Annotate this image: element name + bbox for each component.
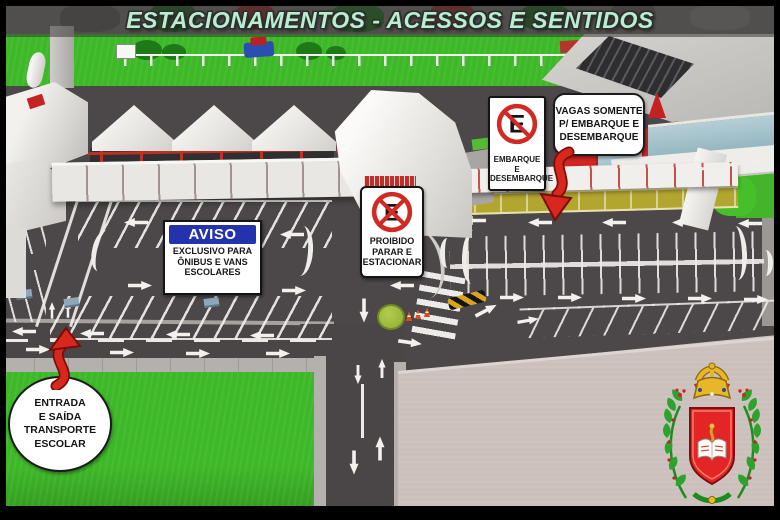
traffic-cone [405,311,413,321]
frame-top [0,0,780,6]
tent-canopy [172,105,256,151]
car-roof [250,36,267,45]
callout-entrada-line: ESCOLAR [34,438,85,452]
lane-arrow [622,294,646,303]
lane-arrow [282,286,306,295]
small-sign-hut [116,44,136,59]
sign-aviso-line: ESCOLARES [165,267,260,278]
tent-canopy [252,105,336,151]
callout-entrada: ENTRADA E SAÍDA TRANSPORTE ESCOLAR [8,376,112,472]
sign-no-stopping: E PROIBIDO PARAR E ESTACIONAR [360,186,424,278]
tent-canopy [92,105,176,151]
callout-entrada-line: ENTRADA [34,397,85,411]
sign-aviso-header: AVISO [169,225,256,244]
sidewalk-vertical-left [314,356,326,508]
sign-aviso: AVISO EXCLUSIVO PARA ÔNIBUS E VANS ESCOL… [163,220,262,295]
no-stopping-icon: E [370,190,414,234]
vertical-road-centerline [361,384,364,438]
callout-vagas-line: VAGAS SOMENTE [555,105,642,118]
frame-right [774,0,780,520]
parking-row-right-double [450,231,765,296]
sign-no-stopping-line: PARAR E [362,247,422,258]
lane-arrow [473,301,498,320]
lane-divider-crescent [758,250,773,276]
parking-diagram-screenshot: ESTACIONAMENTOS - ACESSOS E SENTIDOS AVI… [0,0,780,520]
frame-bottom [0,506,780,520]
lane-arrow [360,299,369,323]
parked-car [244,41,275,58]
attention-arrow-to-road [44,326,84,390]
parking-row-right-bottom [520,300,777,339]
callout-vagas-line: DESEMBARQUE [560,131,639,144]
no-parking-icon: E [495,102,539,146]
sign-no-stopping-line: PROIBIDO [362,236,422,247]
attention-arrow-to-embark-zone [533,146,577,222]
walkway-platform-left [52,157,373,202]
lane-arrow [738,219,762,228]
title-bar: ESTACIONAMENTOS - ACESSOS E SENTIDOS [0,4,780,37]
lane-arrow [128,281,152,290]
callout-vagas-line: P/ EMBARQUE E [559,118,639,131]
building-left-a [0,82,88,174]
frame-left [0,0,6,520]
lane-arrow [602,218,626,227]
callout-entrada-line: TRANSPORTE [24,424,96,438]
sign-aviso-line: EXCLUSIVO PARA [165,246,260,257]
page-title: ESTACIONAMENTOS - ACESSOS E SENTIDOS [126,7,653,34]
sign-aviso-line: ÔNIBUS E VANS [165,257,260,268]
coat-of-arms [660,362,764,508]
lane-divider-crescent [440,238,455,268]
sign-no-stopping-line: ESTACIONAR [362,257,422,268]
callout-entrada-line: E SAÍDA [39,411,82,425]
roundabout-circle [377,304,405,330]
